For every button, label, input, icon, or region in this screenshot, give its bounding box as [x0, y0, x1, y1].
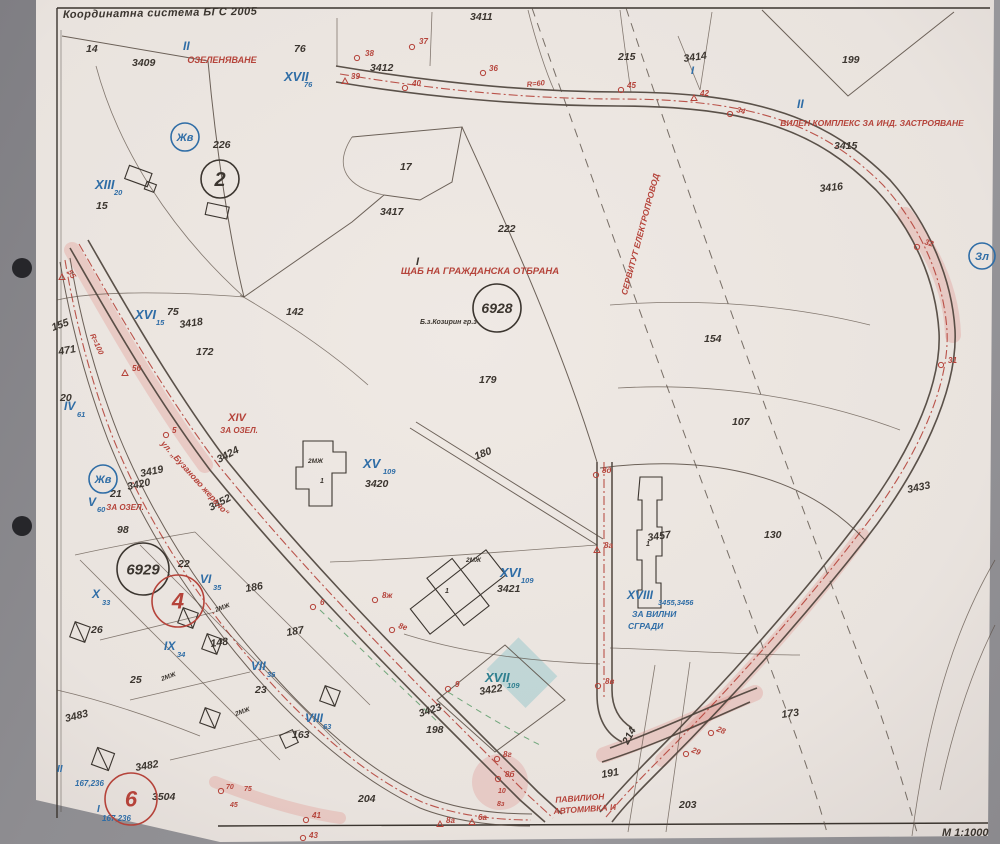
map-label: 22 [177, 558, 190, 570]
map-label: 6 [320, 598, 325, 607]
encircled-id-label: 4 [171, 589, 184, 614]
map-label: 9 [455, 680, 460, 689]
encircled-id-label: Жв [94, 474, 112, 486]
map-label: 15 [96, 200, 108, 212]
map-label: 76 [304, 80, 313, 89]
map-label: 154 [704, 333, 722, 345]
map-label: 33 [102, 598, 111, 607]
map-label: 8д [602, 466, 611, 475]
map-label: VIII [305, 711, 324, 725]
map-label: 1 [646, 541, 650, 548]
map-label: 198 [426, 724, 444, 736]
map-label: 56 [132, 364, 141, 373]
map-label: 142 [286, 306, 304, 318]
map-label: СГРАДИ [628, 621, 664, 631]
map-label: 20 [113, 188, 123, 197]
map-label: 167,236 [75, 779, 104, 788]
map-label: 75 [244, 786, 252, 793]
map-label: 42 [699, 89, 709, 98]
map-label: 17 [400, 161, 413, 173]
map-label: 14 [86, 43, 98, 55]
map-label: 1 [320, 478, 324, 485]
map-label: 109 [521, 576, 534, 585]
map-label: 39 [351, 72, 360, 81]
encircled-id-label: 2 [213, 169, 225, 191]
map-label: 8з [497, 801, 505, 808]
map-label: 3420 [365, 478, 389, 490]
map-label: 25 [129, 674, 142, 686]
map-label: II [57, 764, 63, 775]
map-label: 34 [177, 650, 186, 659]
map-label: II [797, 97, 804, 111]
map-label: 70 [226, 784, 234, 791]
map-label: 2МЖ [307, 458, 324, 465]
map-label: VII [251, 659, 266, 673]
encircled-id-label: 6 [125, 787, 138, 812]
map-label: 8а [604, 541, 613, 550]
map-label: 36 [489, 64, 498, 73]
map-label: 36 [267, 670, 276, 679]
map-label: 43 [308, 831, 318, 840]
map-label: XIII [94, 177, 115, 192]
map-label: 75 [167, 306, 179, 318]
map-label: 204 [357, 793, 376, 805]
map-label: XVI [134, 307, 156, 322]
encircled-id-label: 6928 [481, 300, 512, 316]
map-label: 35 [213, 583, 222, 592]
map-label: 215 [617, 51, 636, 63]
map-label: 179 [479, 374, 497, 386]
map-label: 3411 [470, 11, 493, 23]
map-label: VI [200, 572, 212, 586]
map-label: 61 [77, 410, 85, 419]
map-label: 163 [292, 729, 310, 741]
encircled-id-label: Жв [176, 132, 194, 144]
map-label: 2МЖ [465, 557, 482, 564]
map-label: 37 [419, 37, 428, 46]
map-label: XVI [499, 565, 521, 580]
map-label: 8г [503, 750, 512, 759]
map-label: 3421 [497, 583, 521, 595]
map-label: 8б [505, 770, 515, 779]
map-label: 199 [842, 54, 860, 66]
map-label: 15 [156, 318, 165, 327]
map-label: ЗА ОЗЕЛ. [220, 426, 258, 435]
map-label: 109 [507, 681, 520, 690]
map-label: ОЗЕЛЕНЯВАНЕ [187, 55, 257, 65]
hole-punch [12, 516, 32, 536]
map-label: ЩАБ НА ГРАЖДАНСКА ОТБРАНА [401, 266, 559, 277]
map-label: X [91, 587, 101, 601]
map-label: IX [164, 639, 176, 653]
map-label: 107 [732, 416, 751, 428]
map-label: 6а [478, 813, 487, 822]
map-label: XIV [227, 412, 247, 424]
map-label: 222 [497, 223, 516, 235]
map-scale: М 1:1000 [942, 827, 989, 839]
map-label: 148 [210, 636, 229, 650]
map-label: 203 [678, 799, 697, 811]
map-label: 26 [90, 624, 103, 636]
encircled-id-label: Зл [975, 251, 989, 263]
map-label: 1 [445, 588, 449, 595]
map-label: XV [362, 456, 382, 471]
map-label: 23 [254, 684, 267, 696]
map-label: 45 [229, 802, 238, 809]
map-label: 130 [764, 529, 782, 541]
map-label: 3412 [370, 62, 394, 74]
map-label: I [97, 804, 100, 815]
map-label: II [183, 39, 190, 53]
map-label: 8а [446, 816, 455, 825]
map-label: 173 [781, 707, 800, 721]
hole-punch [12, 258, 32, 278]
map-label: IV [64, 399, 76, 413]
map-label: 3416 [819, 181, 844, 195]
map-label: 3409 [132, 57, 156, 69]
scan-backdrop: Координатна система БГС 2005 М 1:1000 14… [0, 0, 1000, 844]
map-label: Б.з.Козирин гр.з [420, 319, 477, 326]
map-label: 8ж [382, 591, 393, 600]
map-label: 3415 [834, 140, 858, 152]
map-label: 76 [294, 43, 306, 55]
map-label: 63 [323, 722, 332, 731]
map-label: 60 [97, 505, 106, 514]
map-label: ЗА ОЗЕЛ. [106, 503, 144, 512]
map-label: 45 [626, 81, 636, 90]
map-label: V [88, 495, 97, 509]
map-label: 226 [212, 139, 231, 151]
map-label: 41 [311, 811, 321, 820]
map-label: 172 [196, 346, 214, 358]
map-label: ВИЛЕН КОМПЛЕКС ЗА ИНД. ЗАСТРОЯВАНЕ [780, 118, 964, 128]
map-label: 40 [411, 79, 421, 88]
map-label: 5 [172, 426, 177, 435]
map-label: 3417 [380, 206, 405, 218]
map-label: 98 [117, 524, 129, 536]
map-label: 109 [383, 467, 396, 476]
encircled-id-label: 6929 [126, 561, 160, 578]
map-label: 10 [498, 788, 506, 795]
map-label: 38 [365, 49, 374, 58]
map-label: 3455,3456 [658, 598, 694, 607]
map-label: ЗА ВИЛНИ [632, 609, 677, 619]
map-label: XVIII [626, 588, 654, 602]
map-label: 31 [948, 356, 957, 365]
cadastral-map: Координатна система БГС 2005 М 1:1000 14… [0, 0, 1000, 844]
map-label: 8в [605, 677, 614, 686]
